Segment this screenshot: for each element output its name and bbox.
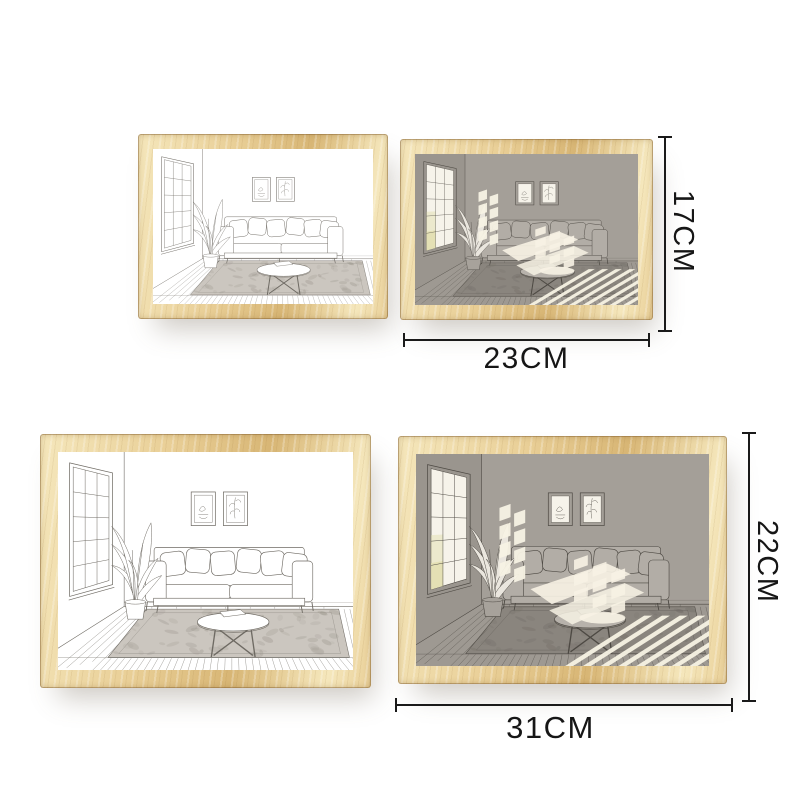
dimension-label-width-small: 23CM [403,344,650,374]
dimension-label-height-large: 22CM [752,520,781,603]
frame-small-light [138,134,388,319]
artwork-living-room-sketch-large-light [58,452,353,670]
frame-small-grey [400,139,653,320]
artwork-living-room-sketch-large-grey [416,454,709,666]
frame-large-grey [398,436,727,684]
dimension-line-width-large [395,704,733,706]
dimension-label-width-large: 31CM [408,712,693,743]
frame-large-light [40,434,371,688]
artwork-living-room-sketch-small-light [153,149,373,304]
dimension-line-height-large [748,432,750,702]
artwork-living-room-sketch-small-grey [415,154,638,305]
dimension-line-width-small [403,339,650,341]
dimension-label-height-small: 17CM [668,190,697,273]
dimension-line-height-small [664,136,666,332]
product-size-chart: 17CM 23CM 22CM 31CM [0,0,800,800]
